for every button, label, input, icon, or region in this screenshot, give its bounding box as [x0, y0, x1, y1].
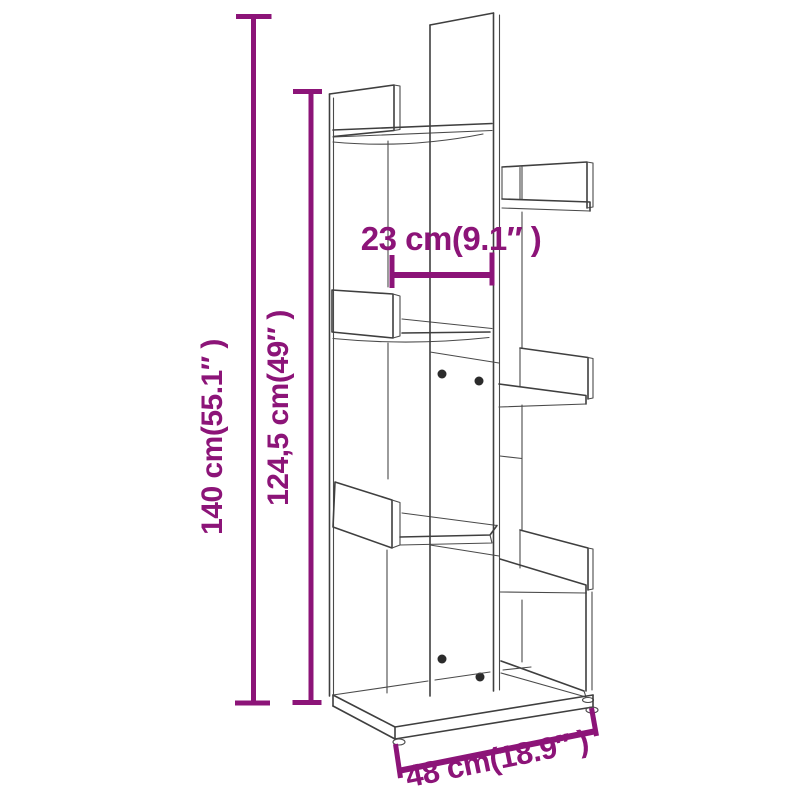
foot — [583, 698, 594, 703]
bookshelf-drawing — [330, 13, 599, 745]
top-right-shelf — [502, 162, 593, 211]
cam-hole — [438, 370, 447, 379]
cam-hole — [475, 377, 484, 386]
center-column — [430, 13, 522, 696]
shelf-depth-label: 23 cm(9.1″ ) — [361, 220, 541, 257]
cam-hole — [438, 655, 447, 664]
dimension-diagram-stage: 140 cm(55.1″ ) 124,5 cm(49″ ) 23 cm(9.1″… — [0, 0, 800, 800]
base-width-dimension: 48 cm(18.9″ ) — [396, 708, 597, 794]
lower-left-shelf — [333, 482, 497, 548]
middle-right-shelf — [499, 348, 593, 407]
foot — [393, 739, 405, 745]
lower-right-shelf — [500, 530, 594, 703]
upper-height-label: 124,5 cm(49″ ) — [262, 310, 295, 506]
total-height-dimension: 140 cm(55.1″ ) — [196, 17, 272, 704]
bookshelf-dimension-diagram: 140 cm(55.1″ ) 124,5 cm(49″ ) 23 cm(9.1″… — [0, 0, 800, 800]
left-side-panel — [330, 85, 401, 696]
middle-left-shelf — [332, 290, 492, 342]
dimension-tick — [396, 744, 401, 778]
upper-height-dimension: 124,5 cm(49″ ) — [262, 92, 322, 703]
total-height-label: 140 cm(55.1″ ) — [196, 339, 229, 535]
